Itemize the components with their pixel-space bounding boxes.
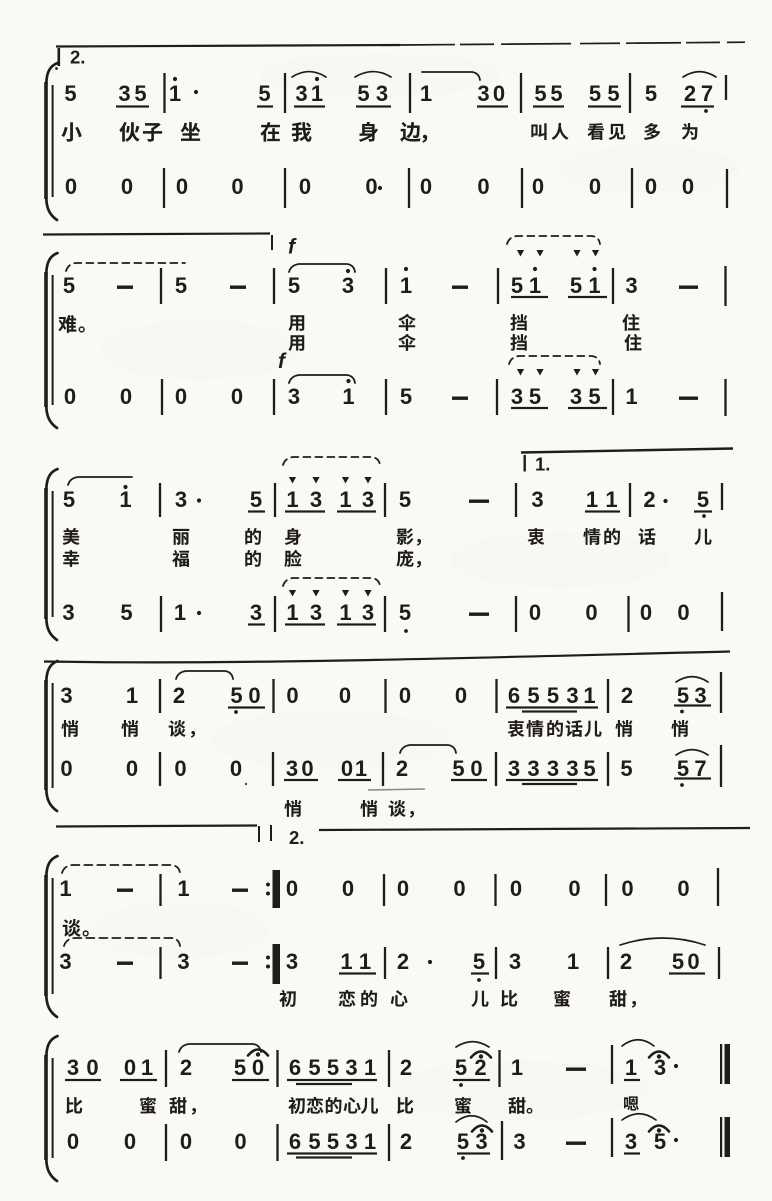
svg-text:3: 3 [67, 1055, 79, 1080]
svg-text:5: 5 [63, 487, 75, 512]
svg-text:1: 1 [400, 273, 412, 298]
svg-text:3: 3 [625, 273, 637, 298]
svg-text:2: 2 [643, 487, 655, 512]
svg-text:2: 2 [620, 949, 632, 974]
svg-text:3: 3 [475, 1129, 487, 1154]
svg-text:3: 3 [376, 81, 388, 106]
svg-text:0: 0 [86, 1055, 98, 1080]
svg-text:1: 1 [59, 876, 71, 901]
svg-text:3: 3 [250, 600, 262, 625]
svg-text:5: 5 [583, 756, 595, 781]
svg-text:1: 1 [286, 600, 298, 625]
svg-text:3: 3 [288, 384, 300, 409]
svg-text:3: 3 [513, 1129, 525, 1154]
svg-text:0: 0 [65, 174, 77, 199]
svg-text:5: 5 [399, 487, 411, 512]
svg-text:0: 0 [453, 876, 465, 901]
svg-text:0: 0 [124, 1129, 136, 1154]
svg-text:2: 2 [173, 683, 185, 708]
svg-text:0: 0 [248, 683, 260, 708]
svg-text:1: 1 [342, 384, 354, 409]
svg-text:1: 1 [583, 683, 595, 708]
svg-text:0: 0 [180, 1129, 192, 1154]
svg-text:5: 5 [250, 487, 262, 512]
svg-text:0: 0 [645, 174, 657, 199]
svg-text:6: 6 [508, 683, 520, 708]
svg-text:0: 0 [529, 600, 541, 625]
svg-text:1: 1 [420, 81, 432, 106]
svg-text:0: 0 [126, 756, 138, 781]
svg-text:5: 5 [589, 81, 601, 106]
svg-text:5: 5 [570, 273, 582, 298]
svg-text:7: 7 [701, 81, 713, 106]
svg-text:0: 0 [687, 949, 699, 974]
svg-text:3: 3 [531, 487, 543, 512]
svg-text:0: 0 [510, 876, 522, 901]
svg-text:5: 5 [455, 1055, 467, 1080]
svg-text:1: 1 [364, 1055, 376, 1080]
svg-text:3: 3 [566, 683, 578, 708]
svg-text:3: 3 [295, 81, 307, 106]
svg-text:5: 5 [672, 949, 684, 974]
svg-text:0: 0 [568, 876, 580, 901]
svg-text:0: 0 [621, 876, 633, 901]
svg-text:3: 3 [362, 600, 374, 625]
svg-text:1: 1 [529, 273, 541, 298]
svg-text:3: 3 [175, 487, 187, 512]
svg-text:2.: 2. [289, 827, 304, 848]
svg-text:3: 3 [345, 1129, 357, 1154]
svg-text:5: 5 [588, 384, 600, 409]
svg-text:3: 3 [566, 756, 578, 781]
svg-text:1: 1 [359, 949, 371, 974]
svg-text:1: 1 [126, 683, 138, 708]
svg-text:0: 0 [342, 876, 354, 901]
svg-text:5: 5 [654, 1129, 666, 1154]
svg-text:1: 1 [177, 876, 189, 901]
svg-text:3: 3 [477, 81, 489, 106]
svg-text:1: 1 [141, 1055, 153, 1080]
svg-text:3: 3 [60, 683, 72, 708]
svg-text:0: 0 [252, 1055, 264, 1080]
svg-text:7: 7 [694, 756, 706, 781]
svg-text:0: 0 [286, 683, 298, 708]
svg-text:5: 5 [529, 384, 541, 409]
svg-text:5: 5 [547, 683, 559, 708]
svg-text:5: 5 [400, 384, 412, 409]
svg-text:0: 0 [399, 683, 411, 708]
svg-text:3: 3 [509, 949, 521, 974]
svg-text:0: 0 [420, 174, 432, 199]
svg-text:0: 0 [60, 756, 72, 781]
svg-text:3: 3 [118, 81, 130, 106]
svg-text:0: 0 [640, 600, 652, 625]
svg-text:2.: 2. [70, 47, 85, 68]
svg-text:0: 0 [286, 876, 298, 901]
svg-text:0: 0 [477, 174, 489, 199]
svg-text:5: 5 [534, 81, 546, 106]
svg-text:1: 1 [625, 1055, 637, 1080]
svg-text:3: 3 [625, 1129, 637, 1154]
svg-text:5: 5 [399, 600, 411, 625]
svg-text:0: 0 [341, 756, 353, 781]
svg-text:1: 1 [286, 487, 298, 512]
svg-text:0: 0 [174, 756, 186, 781]
svg-text:5: 5 [64, 81, 76, 106]
svg-text:2: 2 [474, 1055, 486, 1080]
svg-text:0: 0 [120, 384, 132, 409]
svg-text:5: 5 [175, 273, 187, 298]
svg-text:2: 2 [180, 1055, 192, 1080]
svg-text:5: 5 [234, 1055, 246, 1080]
svg-text:2: 2 [400, 1129, 412, 1154]
svg-text:1: 1 [567, 949, 579, 974]
svg-text:5: 5 [527, 683, 539, 708]
svg-text:1: 1 [174, 600, 186, 625]
svg-text:0: 0 [175, 384, 187, 409]
svg-text:3: 3 [286, 756, 298, 781]
svg-text:5: 5 [511, 273, 523, 298]
svg-text:1.: 1. [535, 454, 550, 475]
svg-text:1: 1 [511, 1055, 523, 1080]
svg-text:3: 3 [362, 487, 374, 512]
svg-text:3: 3 [345, 1055, 357, 1080]
svg-text:3: 3 [342, 273, 354, 298]
svg-text:1: 1 [339, 600, 351, 625]
svg-text:3: 3 [570, 384, 582, 409]
svg-text:1: 1 [605, 487, 617, 512]
svg-text:3: 3 [511, 384, 523, 409]
svg-text:0: 0 [301, 756, 313, 781]
svg-text:5: 5 [677, 683, 689, 708]
svg-text:5: 5 [308, 1129, 320, 1154]
svg-text:0: 0 [176, 174, 188, 199]
svg-text:0: 0 [365, 174, 377, 199]
svg-text:3: 3 [310, 600, 322, 625]
svg-text:3: 3 [310, 487, 322, 512]
svg-text:2: 2 [400, 1055, 412, 1080]
svg-text:3: 3 [59, 949, 71, 974]
svg-text:5: 5 [452, 756, 464, 781]
svg-text:5: 5 [607, 81, 619, 106]
svg-text:5: 5 [230, 683, 242, 708]
svg-text:1: 1 [339, 487, 351, 512]
svg-text:0: 0 [231, 174, 243, 199]
svg-text:5: 5 [327, 1055, 339, 1080]
svg-text:5: 5 [288, 273, 300, 298]
svg-text:3: 3 [654, 1055, 666, 1080]
svg-text:6: 6 [289, 1055, 301, 1080]
svg-text:0: 0 [230, 756, 242, 781]
svg-text:5: 5 [697, 487, 709, 512]
svg-text:6: 6 [289, 1129, 301, 1154]
svg-text:0: 0 [532, 174, 544, 199]
svg-text:5: 5 [645, 81, 657, 106]
svg-text:0: 0 [677, 600, 689, 625]
svg-text:5: 5 [63, 273, 75, 298]
svg-text:1: 1 [169, 81, 181, 106]
svg-text:2: 2 [396, 756, 408, 781]
svg-text:2: 2 [621, 683, 633, 708]
svg-text:1: 1 [586, 487, 598, 512]
svg-text:0: 0 [67, 1129, 79, 1154]
svg-text:0: 0 [397, 876, 409, 901]
svg-text:5: 5 [620, 756, 632, 781]
svg-text:5: 5 [258, 81, 270, 106]
svg-text:2: 2 [397, 949, 409, 974]
svg-text:0: 0 [231, 384, 243, 409]
svg-text:5: 5 [308, 1055, 320, 1080]
svg-text:1: 1 [119, 487, 131, 512]
svg-text:5: 5 [457, 1129, 469, 1154]
svg-text:0: 0 [585, 600, 597, 625]
svg-text:3: 3 [62, 600, 74, 625]
svg-text:1: 1 [340, 949, 352, 974]
svg-text:5: 5 [677, 756, 689, 781]
svg-text:0: 0 [64, 384, 76, 409]
svg-text:1: 1 [311, 81, 323, 106]
svg-text:0: 0 [121, 174, 133, 199]
svg-text:3: 3 [527, 756, 539, 781]
svg-text:0: 0 [455, 683, 467, 708]
svg-text:3: 3 [177, 949, 189, 974]
svg-text:3: 3 [508, 756, 520, 781]
svg-text:0: 0 [470, 756, 482, 781]
svg-text:0: 0 [339, 683, 351, 708]
svg-text:5: 5 [327, 1129, 339, 1154]
svg-text:2: 2 [684, 81, 696, 106]
svg-text:1: 1 [364, 1129, 376, 1154]
svg-text:0: 0 [299, 174, 311, 199]
svg-text:1: 1 [588, 273, 600, 298]
svg-text:0: 0 [682, 174, 694, 199]
svg-text:0: 0 [124, 1055, 136, 1080]
svg-text:5: 5 [550, 81, 562, 106]
svg-text:1: 1 [355, 756, 367, 781]
svg-text:3: 3 [547, 756, 559, 781]
svg-text:5: 5 [357, 81, 369, 106]
svg-text:5: 5 [120, 600, 132, 625]
svg-text:3: 3 [286, 949, 298, 974]
svg-text:0: 0 [493, 81, 505, 106]
svg-text:5: 5 [134, 81, 146, 106]
svg-text:0: 0 [677, 876, 689, 901]
svg-text:0: 0 [589, 174, 601, 199]
svg-text:5: 5 [473, 949, 485, 974]
svg-text:0: 0 [234, 1129, 246, 1154]
svg-text:1: 1 [625, 384, 637, 409]
svg-text:3: 3 [694, 683, 706, 708]
